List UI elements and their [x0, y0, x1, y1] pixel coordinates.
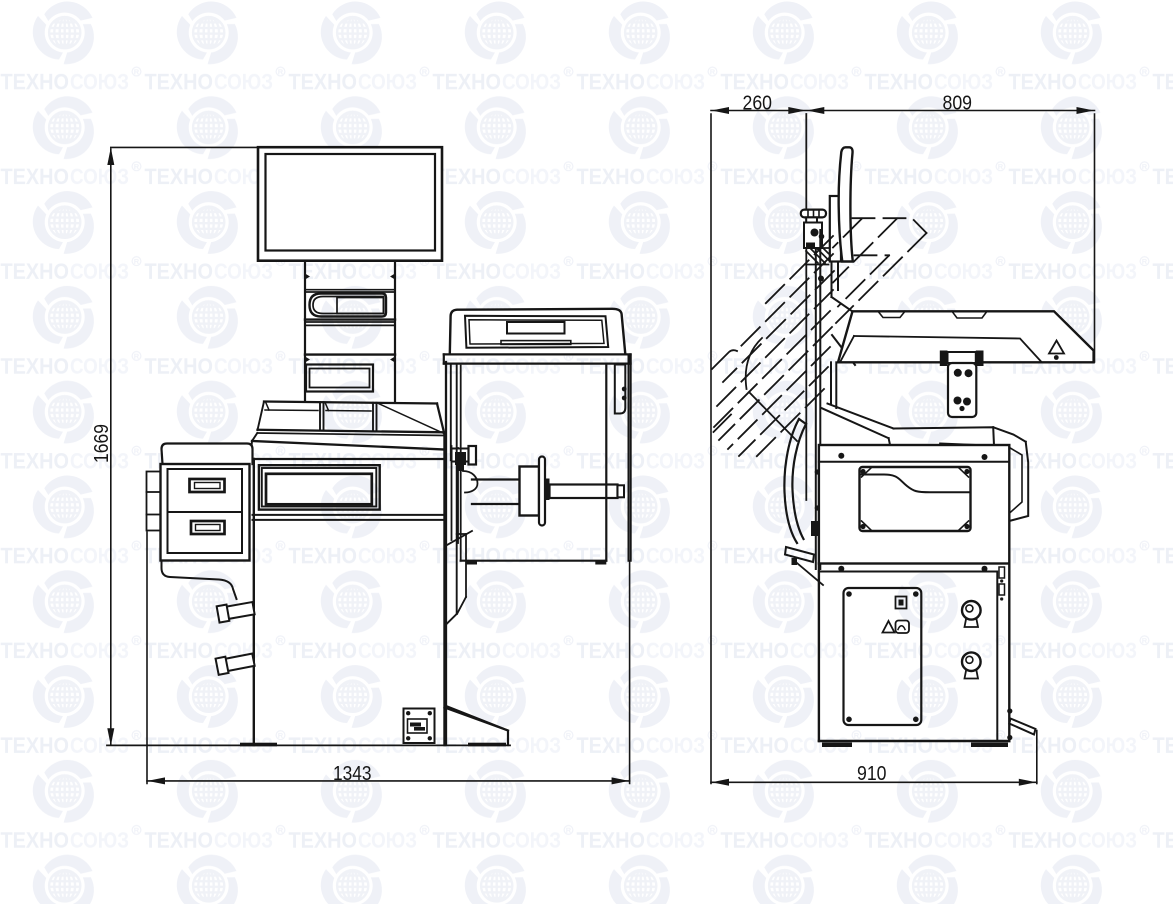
svg-text:260: 260: [743, 92, 773, 114]
svg-text:910: 910: [857, 763, 887, 785]
svg-text:1343: 1343: [333, 763, 372, 785]
svg-text:809: 809: [943, 92, 973, 114]
svg-text:1669: 1669: [91, 424, 113, 463]
